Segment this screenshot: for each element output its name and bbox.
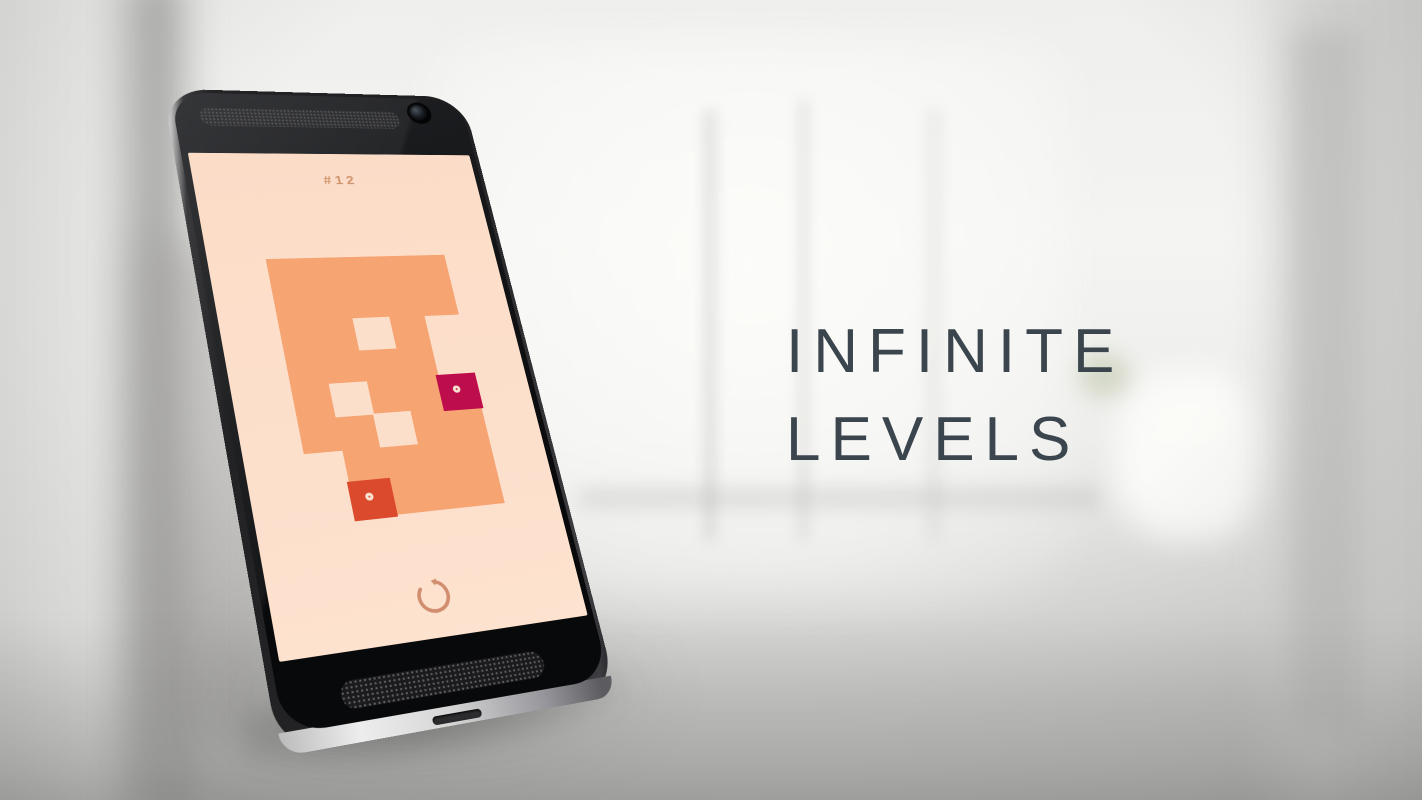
bg-left-wall	[0, 0, 170, 800]
promo-background: #12 INFINITE LEVELS	[0, 0, 1422, 800]
light-tile	[373, 411, 418, 448]
red-piece-with-ring[interactable]	[347, 478, 398, 522]
orange-tile	[409, 255, 451, 286]
orange-tile	[445, 406, 489, 442]
game-board	[266, 255, 505, 524]
light-tile	[352, 317, 396, 351]
bg-right-column	[1290, 30, 1360, 730]
level-indicator: #12	[191, 173, 477, 188]
piece-ring-icon	[364, 492, 374, 501]
restart-button[interactable]	[410, 573, 457, 621]
light-tile	[329, 381, 374, 417]
hero-title: INFINITE LEVELS	[786, 308, 1124, 484]
orange-tile	[395, 346, 439, 380]
restart-icon	[410, 573, 457, 621]
bg-window-sill	[580, 492, 1100, 504]
hero-title-line-1: INFINITE	[786, 308, 1124, 396]
piece-ring-icon	[452, 385, 461, 393]
hero-title-line-2: LEVELS	[786, 396, 1124, 484]
top-speaker-grille	[198, 107, 401, 129]
bg-right-wall	[1240, 0, 1422, 800]
crimson-piece-with-ring[interactable]	[436, 373, 484, 412]
bg-window-mullion	[706, 110, 714, 540]
orange-tile	[453, 437, 497, 474]
orange-tile	[416, 284, 458, 316]
orange-tile	[460, 469, 504, 507]
bg-blurred-armchair	[1115, 370, 1265, 540]
